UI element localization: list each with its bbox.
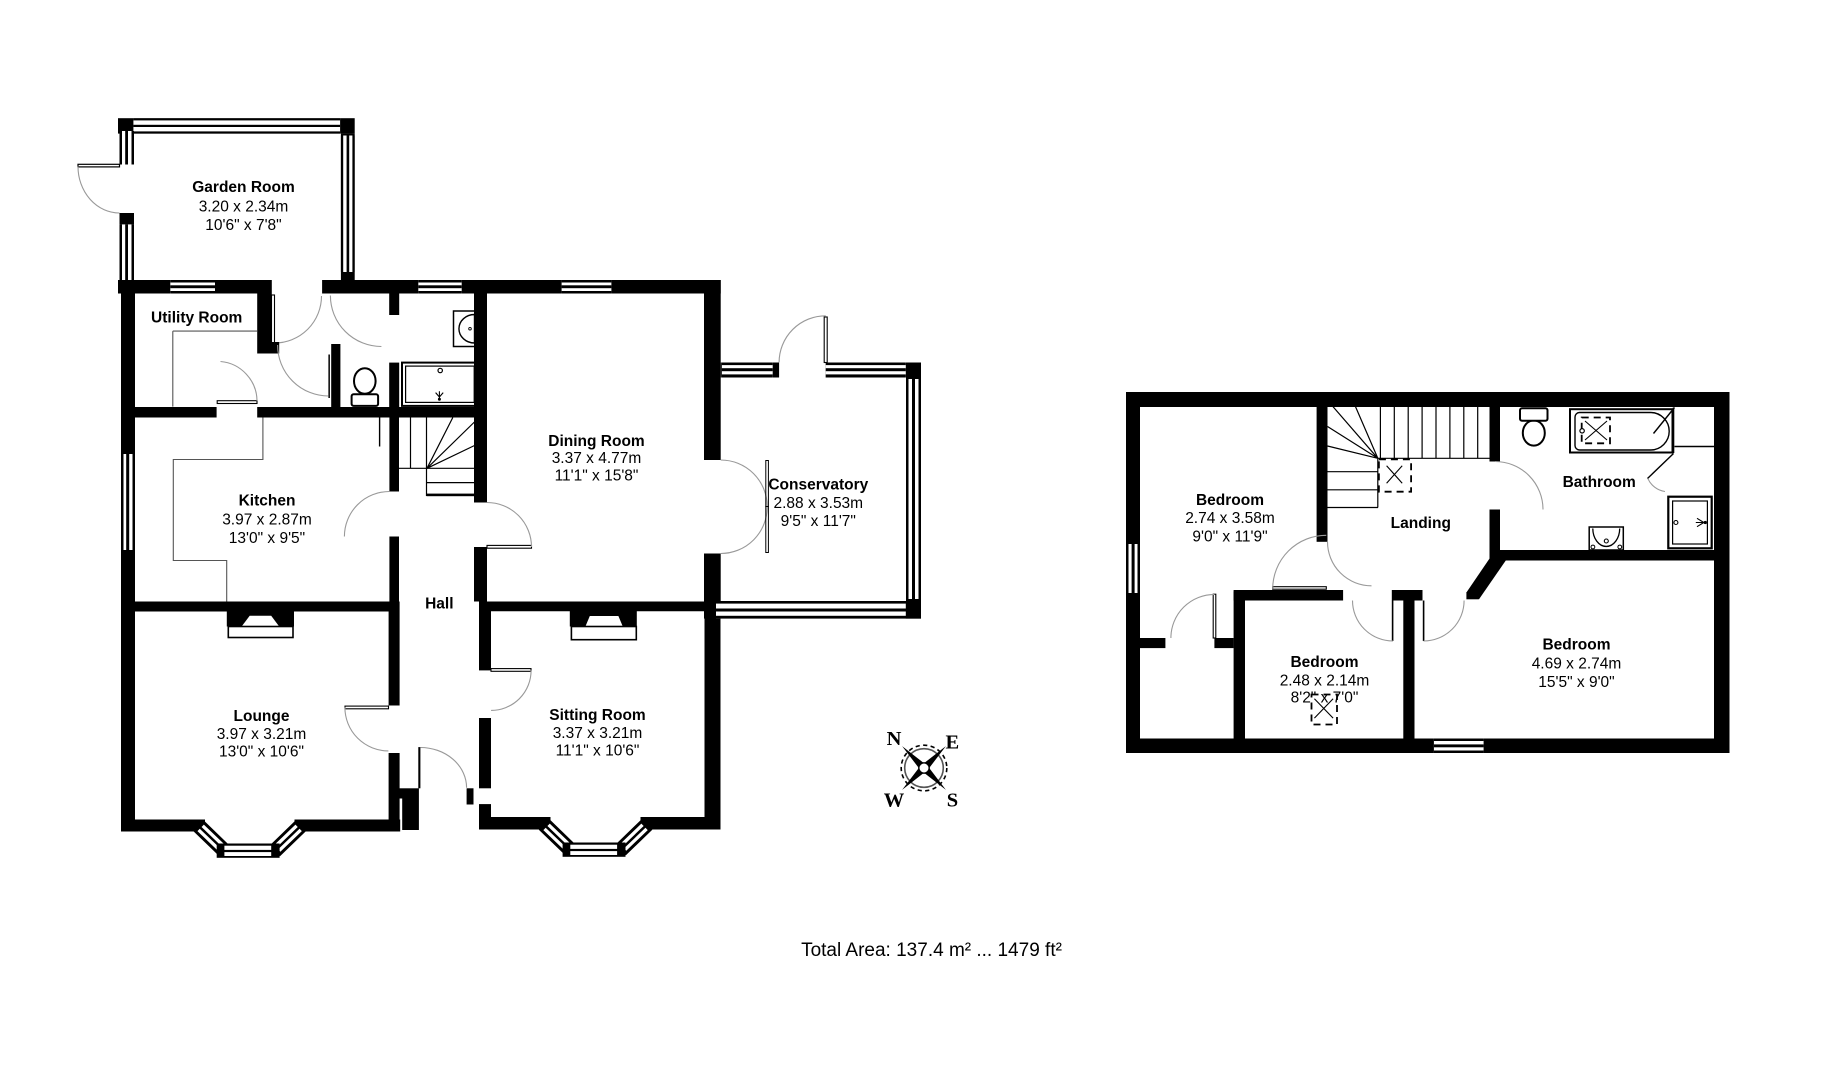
svg-text:11'1" x 10'6": 11'1" x 10'6" <box>556 743 640 760</box>
svg-text:13'0" x 10'6": 13'0" x 10'6" <box>219 744 304 761</box>
svg-text:15'5" x 9'0": 15'5" x 9'0" <box>1538 674 1614 691</box>
svg-text:W: W <box>884 789 905 811</box>
svg-text:2.74 x 3.58m: 2.74 x 3.58m <box>1185 510 1275 527</box>
svg-text:Landing: Landing <box>1391 515 1451 532</box>
svg-text:2.88 x 3.53m: 2.88 x 3.53m <box>773 495 863 512</box>
svg-text:E: E <box>946 731 960 753</box>
svg-text:Bathroom: Bathroom <box>1563 474 1636 491</box>
svg-text:N: N <box>887 728 902 750</box>
svg-text:11'1" x 15'8": 11'1" x 15'8" <box>555 468 639 485</box>
svg-text:Total Area: 137.4 m² ... 1479: Total Area: 137.4 m² ... 1479 ft² <box>801 940 1062 961</box>
svg-text:Sitting Room: Sitting Room <box>549 707 645 724</box>
svg-text:Lounge: Lounge <box>234 708 290 725</box>
svg-text:10'6" x 7'8": 10'6" x 7'8" <box>205 217 281 234</box>
svg-text:3.37 x 4.77m: 3.37 x 4.77m <box>552 450 642 467</box>
svg-text:Dining Room: Dining Room <box>548 433 644 450</box>
svg-text:Hall: Hall <box>425 596 453 613</box>
svg-text:3.97 x 3.21m: 3.97 x 3.21m <box>217 726 307 743</box>
svg-text:3.37 x 3.21m: 3.37 x 3.21m <box>553 725 643 742</box>
svg-text:3.20 x 2.34m: 3.20 x 2.34m <box>199 198 289 215</box>
svg-text:Bedroom: Bedroom <box>1196 492 1264 509</box>
svg-text:Conservatory: Conservatory <box>768 477 868 494</box>
svg-text:Utility Room: Utility Room <box>151 310 242 327</box>
svg-text:9'5" x 11'7": 9'5" x 11'7" <box>781 513 856 530</box>
svg-text:Kitchen: Kitchen <box>239 493 296 510</box>
svg-text:S: S <box>947 789 958 811</box>
svg-text:3.97 x 2.87m: 3.97 x 2.87m <box>222 512 312 529</box>
svg-text:8'2" x 7'0": 8'2" x 7'0" <box>1291 690 1359 707</box>
svg-text:13'0" x 9'5": 13'0" x 9'5" <box>229 530 305 547</box>
svg-text:4.69 x 2.74m: 4.69 x 2.74m <box>1532 655 1622 672</box>
svg-text:Bedroom: Bedroom <box>1290 654 1358 671</box>
svg-text:Bedroom: Bedroom <box>1542 637 1610 654</box>
svg-text:Garden Room: Garden Room <box>192 179 294 196</box>
svg-text:9'0" x 11'9": 9'0" x 11'9" <box>1192 529 1267 546</box>
svg-text:2.48 x 2.14m: 2.48 x 2.14m <box>1280 673 1370 690</box>
